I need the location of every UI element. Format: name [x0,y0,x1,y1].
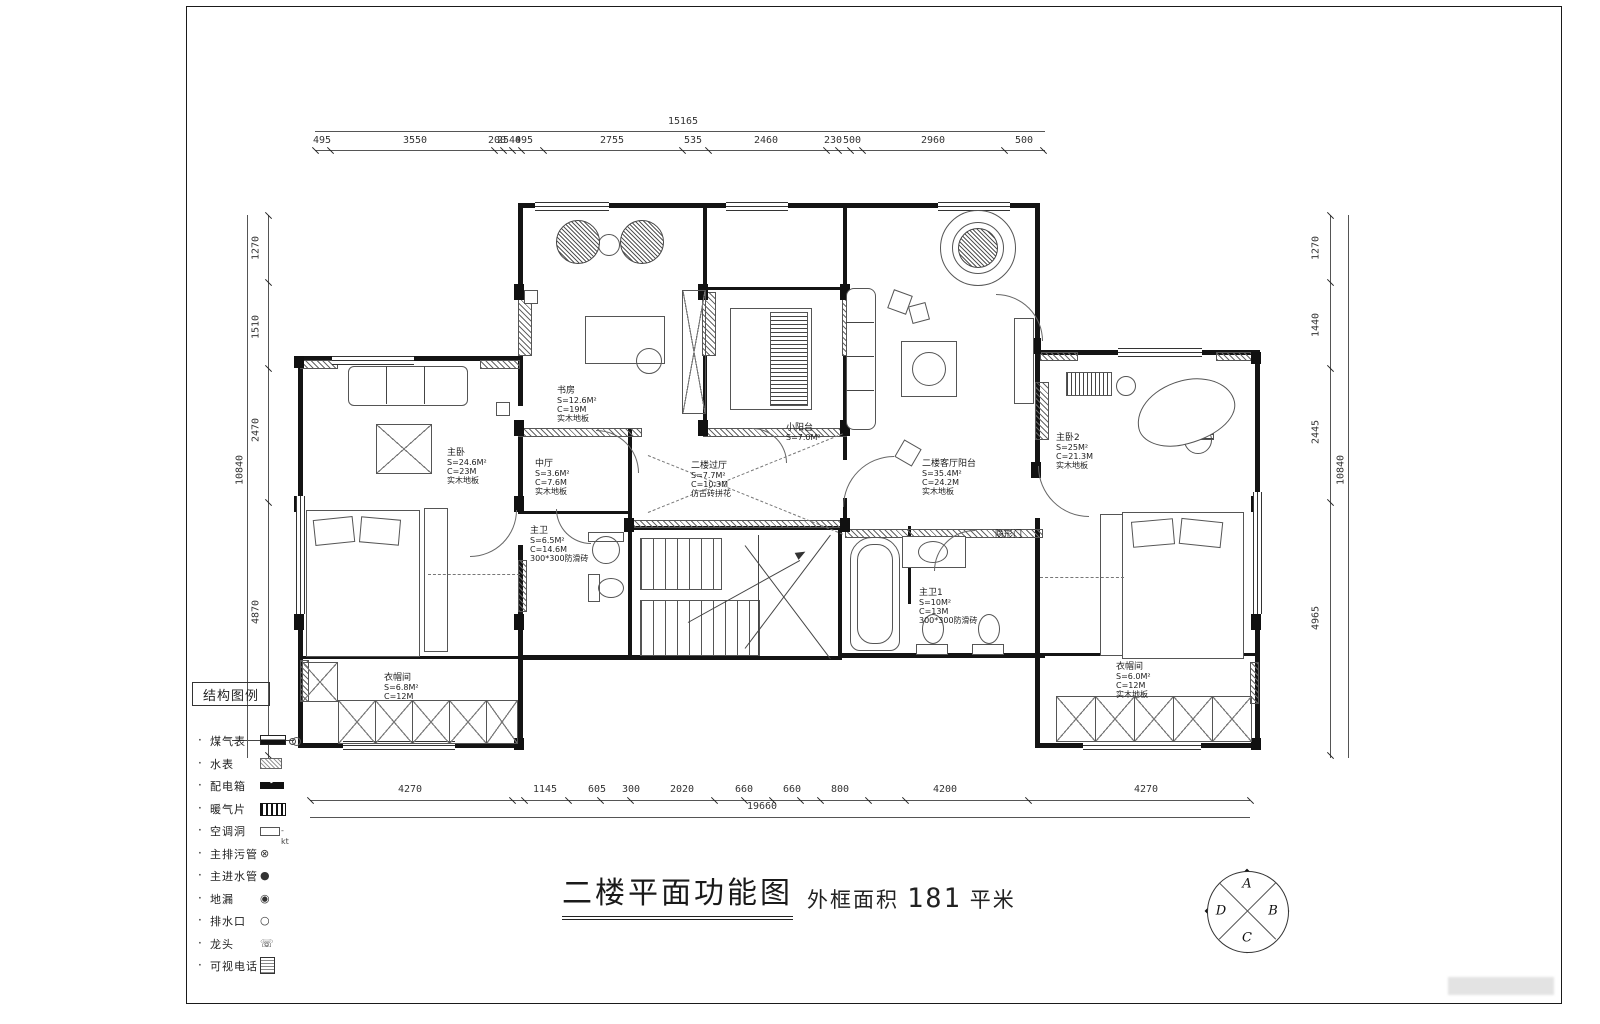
dimension-value: 660 [783,784,801,795]
compass-letter-a: A [1242,877,1251,892]
room-label: 书房S=12.6M²C=19M实木地板 [557,387,597,423]
bathtub-inner [857,544,893,644]
dimension-value: 4870 [251,600,262,624]
wardrobe [302,662,338,702]
room-label-line: 小阳台 [786,424,821,433]
legend-item: ·配电箱 [198,778,328,794]
room-label-line: 衣帽间 [384,674,419,683]
window [726,202,788,211]
tv-cabinet [376,424,432,474]
detail-line [758,535,759,655]
dimension-line [315,150,1045,151]
dimension-value: 500 [1015,135,1033,146]
detail-line [386,366,387,404]
legend-item: ·主排污管⊗ [198,846,328,862]
legend-item-label: 可视电话 [210,958,258,974]
room-label-line: C=7.6M [535,478,570,487]
room-label-line: S=7.7M² [691,471,731,480]
structural-column [514,614,524,630]
room-label-line: S=6.0M² [1116,672,1151,681]
room-label: 中厅S=3.6M²C=7.6M实木地板 [535,460,570,496]
structural-column [1251,614,1261,630]
wall-segment [518,655,642,660]
compass-letter-d: D [1216,904,1226,919]
detail-line [846,390,874,391]
orientation-compass: A B C D [1205,869,1291,955]
room-label-line: S=3.6M² [535,469,570,478]
closet [682,290,706,414]
drawing-title-block: 二楼平面功能图 外框面积 181 平米 [562,868,1016,920]
hatched-wall [1040,352,1078,361]
striped-headboard [770,312,808,406]
dimension-value: 2445 [1311,420,1322,444]
room-label: 主卧2S=25M²C=21.3M实木地板 [1056,434,1093,470]
dimension-line [1348,215,1349,758]
dimension-value: 500 [843,135,861,146]
hatched-wall [480,360,520,369]
legend-item: ·煤气表 [198,733,328,749]
wash-basin [592,536,620,564]
cabinet [424,508,448,652]
side-table [598,234,620,256]
hatched-wall [1035,382,1049,440]
legend-bullet: · [198,846,202,860]
dimension-value: 4200 [933,784,957,795]
room-label: 二楼客厅阳台S=35.4M²C=24.2M实木地板 [922,460,976,496]
ac-hole-icon [260,827,280,836]
room-label-line: S=12.6M² [557,396,597,405]
wall-segment [1035,518,1040,658]
room-label-line: C=10.3M [691,480,731,489]
room-label-line: 主卫 [530,527,589,536]
room-label: 衣帽间S=6.8M²C=12M [384,674,419,701]
dimension-line [310,817,1250,818]
room-label-line: 300*300防滑砖 [530,554,589,563]
wardrobe [375,700,413,744]
legend-bullet: · [198,823,202,837]
toilet [598,578,624,598]
detail-line [424,366,425,404]
cabinet [1100,514,1124,656]
window [1118,348,1202,357]
dimension-value: 1440 [1311,313,1322,337]
dimension-total: 10840 [235,455,246,485]
room-label-line: 主卧 [447,449,487,458]
window [1253,492,1262,614]
room-label-line: 300*300防滑砖 [919,616,978,625]
room-label-line: 二楼过厅 [691,462,731,471]
legend-item-label: 龙头 [210,936,234,952]
wall-segment [518,203,523,295]
room-label-line: 实木地板 [1116,690,1151,699]
dashed-guide [428,574,520,575]
room-label-line: 衣帽间 [1116,663,1151,672]
drawing-title: 二楼平面功能图 [562,868,793,920]
outer-frame-area: 外框面积 181 平米 [807,883,1016,920]
faucet-icon: ☏ [260,938,274,949]
legend-bullet: · [198,756,202,770]
structural-column [624,518,634,532]
pillow [359,516,401,545]
power-box [496,402,510,416]
radiator-icon [260,803,286,816]
dimension-line [1330,215,1331,758]
dimension-total: 10840 [1336,455,1347,485]
dimension-value: 660 [735,784,753,795]
dimension-line [247,215,248,758]
wardrobe [412,700,450,744]
dimension-value: 605 [588,784,606,795]
room-label: 主卧S=24.6M²C=23M实木地板 [447,449,487,485]
room-label-line: C=24.2M [922,478,976,487]
detail-line [846,356,874,357]
dimension-value: 1145 [533,784,557,795]
dimension-value: 4965 [1311,606,1322,630]
wall-segment [628,656,842,660]
window [535,202,609,211]
legend-item-label: 主排污管 [210,846,258,862]
dimension-total: 15165 [668,116,698,127]
sewage-pipe-icon: ⊗ [260,848,269,859]
gas-meter-icon [260,735,286,745]
watermark [1448,977,1554,995]
hatched-wall [518,560,527,612]
dimension-value: 4270 [398,784,422,795]
legend-item: ·龙头☏ [198,936,328,952]
legend-item-label: 配电箱 [210,778,246,794]
room-label: 衣帽间S=6.0M²C=12M实木地板 [1116,663,1151,699]
pillow [1179,518,1223,548]
room-label-line: C=14.6M [530,545,589,554]
room-label-line: C=21.3M [1056,452,1093,461]
legend-item: ·排水口○ [198,913,328,929]
structural-column [698,420,708,436]
room-label-line: S=10M² [919,598,978,607]
toilet-tank [972,644,1004,655]
dimension-line [310,800,1250,801]
legend-item-label: 地漏 [210,891,234,907]
room-label-line: C=19M [557,405,597,414]
structural-column [840,518,850,532]
legend-bullet: · [198,913,202,927]
wall-segment [838,526,842,660]
legend-item-label: 主进水管 [210,868,258,884]
legend-bullet: · [198,958,202,972]
legend-bullet: · [198,733,202,747]
room-label-line: 实木地板 [447,476,487,485]
legend-item: ·地漏◉ [198,891,328,907]
armchair [958,228,998,268]
dimension-value: 300 [622,784,640,795]
room-label-line: C=12M [1116,681,1151,690]
wardrobe [486,700,518,744]
room-label-line: S=25M² [1056,443,1093,452]
wall-segment [628,428,632,530]
dimension-value: 3550 [403,135,427,146]
wardrobe [1212,696,1252,742]
chair [636,348,662,374]
wall-segment [703,287,847,290]
window [296,496,305,614]
room-label-line: 主卫1 [919,589,978,598]
room-label-line: 隐形门 [995,531,1022,540]
stair-flight [640,538,722,590]
structural-column [294,614,304,630]
room-label: 主卫S=6.5M²C=14.6M300*300防滑砖 [530,527,589,563]
dimension-line [268,215,269,758]
dashed-guide [1040,577,1124,578]
wall-segment [518,658,523,748]
room-label-line: 仿古砖拼花 [691,489,731,498]
legend-title-text: 结构图例 [203,685,259,704]
area-value: 181 [907,883,962,914]
structural-column [514,420,524,436]
dimension-value: 4270 [1134,784,1158,795]
dimension-value: 2020 [670,784,694,795]
room-label-line: 主卧2 [1056,434,1093,443]
dimension-value: 2470 [251,418,262,442]
dimension-value: 1270 [251,236,262,260]
hatched-wall [518,428,642,437]
wardrobe [1056,696,1096,742]
drain-outlet-icon: ○ [260,915,270,926]
room-label-line: S=7.0M² [786,433,821,442]
power-box-icon [260,782,284,789]
dimension-value: 495 [313,135,331,146]
structural-column [294,356,304,368]
room-label-line: 实木地板 [535,487,570,496]
room-label-line: 实木地板 [557,414,597,423]
dimension-value: 1510 [251,315,262,339]
legend-bullet: · [198,868,202,882]
room-label-line: S=6.8M² [384,683,419,692]
armchair [620,220,664,264]
legend-item: ·暖气片 [198,801,328,817]
legend-item-label: 空调洞 [210,823,246,839]
dimension-value: 535 [684,135,702,146]
wardrobe [1173,696,1213,742]
wardrobe [1095,696,1135,742]
legend-item: ·空调洞 [198,823,328,839]
room-label-line: 实木地板 [922,487,976,496]
room-label: 二楼过厅S=7.7M²C=10.3M仿古砖拼花 [691,462,731,498]
wall-segment [1035,655,1040,747]
legend-item-label: 暖气片 [210,801,246,817]
legend-item: ·水表 [198,756,328,772]
legend-item: ·主进水管● [198,868,328,884]
pillow [1131,518,1175,548]
legend-bullet: · [198,778,202,792]
wardrobe [338,700,376,744]
wardrobe [449,700,487,744]
dimension-total: 19660 [747,801,777,812]
video-phone-icon [260,957,275,974]
room-label-line: S=24.6M² [447,458,487,467]
legend-item: ·可视电话 [198,958,328,974]
room-label: 隐形门 [995,531,1022,540]
room-label-line: C=12M [384,692,419,701]
room-label-line: 实木地板 [1056,461,1093,470]
dimension-value: 800 [831,784,849,795]
legend-item-label: 排水口 [210,913,246,929]
legend-bullet: · [198,801,202,815]
stair-flight [640,600,760,656]
wardrobe [1134,696,1174,742]
wall-segment [628,526,632,660]
room-label-line: C=23M [447,467,487,476]
sofa [348,366,468,406]
wall-segment [703,203,707,293]
room-label-line: 二楼客厅阳台 [922,460,976,469]
structural-column [1251,352,1261,364]
floor-drain-icon: ◉ [260,893,270,904]
hatched-wall [1216,352,1256,361]
window [1083,741,1201,750]
room-label: 主卫1S=10M²C=13M300*300防滑砖 [919,589,978,625]
wall-segment [843,203,847,293]
legend-bullet: · [198,891,202,905]
room-label-line: 书房 [557,387,597,396]
gas-meter-box [524,290,538,304]
room-label-line: C=13M [919,607,978,616]
dimension-value: 2460 [754,135,778,146]
dimension-line [315,131,1045,132]
pillow [313,516,355,546]
dimension-value: 2755 [600,135,624,146]
legend-item-label: 煤气表 [210,733,246,749]
structural-column [514,284,524,300]
compass-letter-c: C [1242,931,1252,946]
detail-line [846,322,874,323]
legend-item-label: 水表 [210,756,234,772]
dimension-value: 495 [515,135,533,146]
toilet [978,614,1000,644]
compass-letter-b: B [1268,904,1278,919]
radiator [1066,372,1112,396]
armchair [556,220,600,264]
table-decor [912,352,946,386]
room-label-line: S=6.5M² [530,536,589,545]
dimension-value: 230 [824,135,842,146]
water-meter-icon [260,758,282,769]
window [332,356,414,365]
toilet-tank [916,644,948,655]
area-unit: 平米 [970,884,1016,914]
stool [1116,376,1136,396]
room-label: 小阳台S=7.0M² [786,424,821,442]
dimension-value: 2960 [921,135,945,146]
dimension-value: 1270 [1311,236,1322,260]
water-inlet-icon: ● [260,870,270,881]
legend-title: 结构图例 [192,682,270,706]
structural-column [1251,738,1261,750]
sofa [846,288,876,430]
room-label-line: 中厅 [535,460,570,469]
legend-bullet: · [198,936,202,950]
room-label-line: S=35.4M² [922,469,976,478]
area-label: 外框面积 [807,884,899,914]
